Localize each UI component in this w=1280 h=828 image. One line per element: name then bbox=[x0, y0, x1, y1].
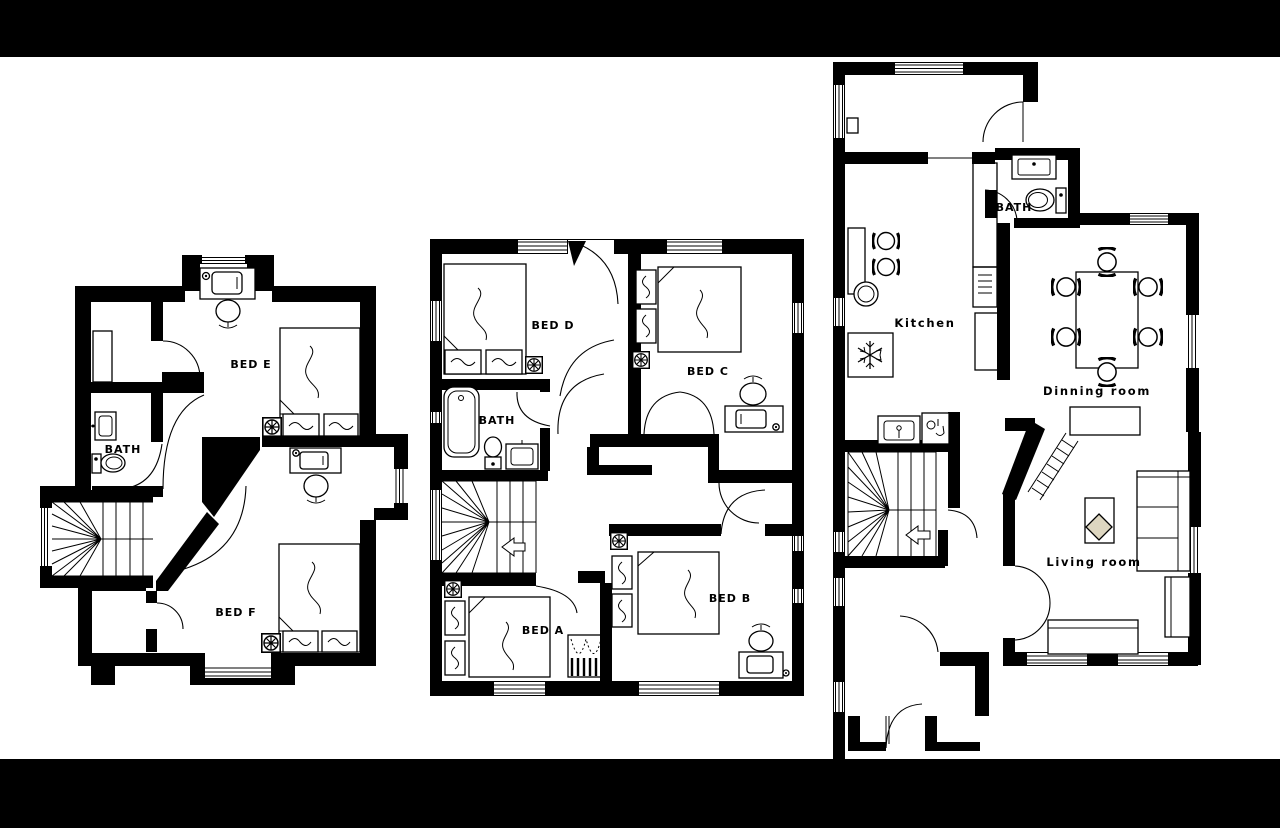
radiator-icon bbox=[262, 634, 280, 652]
room-label-living-room: Living room bbox=[1046, 555, 1141, 569]
room-label-bed-d: BED D bbox=[532, 319, 575, 332]
sink-middle bbox=[506, 440, 538, 469]
bathtub-middle bbox=[444, 387, 479, 457]
room-label-bed-b: BED B bbox=[709, 592, 751, 605]
desk-bed-e bbox=[200, 268, 255, 328]
kitchen-table-chairs bbox=[848, 228, 899, 306]
stairs-middle bbox=[442, 481, 536, 573]
room-label-bed-e: BED E bbox=[230, 358, 271, 371]
bed-f bbox=[279, 544, 360, 652]
desk-bed-b bbox=[739, 624, 789, 678]
room-label-bed-f: BED F bbox=[215, 606, 256, 619]
floor-plan-right: BATH Kitchen Dinning room Living room bbox=[833, 62, 1201, 759]
bed-a bbox=[445, 597, 550, 677]
bench-sofa bbox=[1048, 620, 1138, 654]
room-label-dinning-room: Dinning room bbox=[1043, 384, 1151, 398]
sideboard bbox=[1070, 407, 1140, 435]
radiator-icon bbox=[263, 418, 281, 436]
radiator-icon bbox=[611, 533, 628, 550]
room-label-bed-c: BED C bbox=[687, 365, 729, 378]
stairs-right bbox=[848, 452, 936, 556]
coffee-table-rug bbox=[1085, 498, 1114, 543]
room-label-bath-right: BATH bbox=[996, 201, 1033, 214]
wardrobe-middle bbox=[568, 635, 604, 677]
bed-b bbox=[612, 552, 719, 634]
toilet-left bbox=[92, 454, 125, 473]
radiator-icon bbox=[633, 352, 650, 369]
toilet-middle bbox=[485, 437, 502, 469]
bed-d bbox=[444, 264, 526, 374]
floor-plans-drawing: BED E BATH BED F bbox=[0, 0, 1280, 828]
bath-sink-right bbox=[1012, 150, 1056, 179]
radiator-icon bbox=[445, 581, 462, 598]
room-label-bath-middle: BATH bbox=[479, 414, 516, 427]
armchair bbox=[1165, 577, 1190, 637]
bed-c bbox=[636, 267, 741, 352]
bath-sink-left bbox=[90, 412, 116, 440]
closet-shelf bbox=[93, 331, 112, 382]
radiator-icon bbox=[526, 357, 543, 374]
kitchen-sink bbox=[878, 416, 920, 444]
room-label-kitchen: Kitchen bbox=[894, 316, 955, 330]
stove-icon bbox=[922, 413, 949, 444]
desk-bed-c bbox=[725, 376, 783, 432]
dining-table-chairs bbox=[1052, 248, 1162, 386]
room-label-bath-left: BATH bbox=[105, 443, 142, 456]
stairs-left bbox=[52, 502, 153, 576]
desk-bed-f bbox=[290, 448, 341, 503]
floor-plan-left: BED E BATH BED F bbox=[40, 255, 408, 685]
fridge-icon bbox=[848, 333, 893, 377]
bed-e bbox=[280, 328, 360, 436]
sofa-right-wall bbox=[1137, 471, 1190, 571]
room-label-bed-a: BED A bbox=[522, 624, 564, 637]
floor-plan-middle: BED D BED C BATH BED A BED B bbox=[430, 239, 804, 696]
floor-plan-canvas: BED E BATH BED F bbox=[0, 0, 1280, 828]
